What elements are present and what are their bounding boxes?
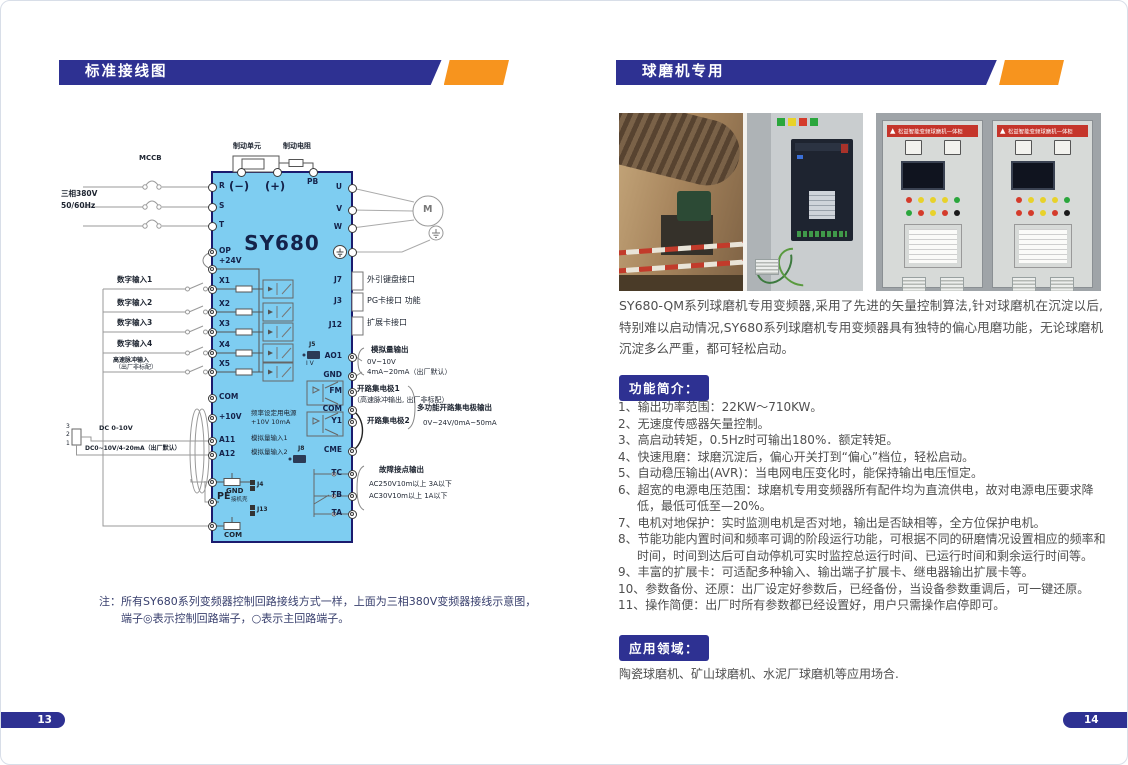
features-badge: 功能简介： — [619, 375, 709, 401]
oc-group-arc — [352, 410, 363, 451]
light-yellow — [1028, 197, 1034, 203]
terminal-label-TC: TC — [331, 469, 342, 478]
meter-icon — [944, 140, 961, 155]
supply-frequency-label: 50/60Hz — [61, 202, 95, 211]
page-number-left: 13 — [1, 712, 65, 728]
brake-unit-label: 制动单元 — [233, 142, 261, 150]
terminal-S — [208, 203, 217, 212]
dc-range-label-2: DC0~10V/4-20mA（出厂默认） — [85, 446, 181, 453]
open-collector2-label: 开路集电极2 — [367, 417, 410, 426]
brake-resistor-label: 制动电阻 — [283, 142, 311, 150]
terminal-PB — [309, 168, 318, 177]
multi-oc-output-range: 0V~24V/0mA~50mA — [423, 419, 497, 427]
meter-icon — [1054, 140, 1071, 155]
terminal-label-W: W — [334, 223, 342, 232]
light-green — [906, 210, 912, 216]
application-badge: 应用领域： — [619, 635, 709, 661]
feature-item: 4、快速甩磨：球磨沉淀后，偏心开关打到“偏心”档位，轻松启动。 — [618, 449, 1115, 466]
square-yellow — [788, 118, 796, 126]
terminal-label-J3: J3 — [334, 297, 342, 306]
photo-control-cabinets: 松益智能变频球磨机一体柜 — [876, 113, 1101, 291]
right-header-bar: 球磨机专用 — [616, 60, 1064, 85]
wiring-diagram: (−)(+)PB RSTOP+24VX1X2X3X4X5COM+10VA11A1… — [61, 129, 541, 569]
feature-item: 9、丰富的扩展卡：可适配多种输入、输出端子扩展卡、继电器输出扩展卡等。 — [618, 564, 1115, 581]
feature-item: 10、参数备份、还原：出厂设定好参数后，已经备份，当设备参数重调后，可一键还原。 — [618, 581, 1115, 598]
terminal-label-J7: J7 — [334, 276, 342, 285]
left-header-bar: 标准接线图 — [59, 60, 509, 85]
digital-input-label: 数字输入2 — [117, 299, 152, 308]
terminal-X4 — [208, 349, 217, 358]
indicator-lights-row2 — [993, 210, 1092, 216]
terminal-R — [208, 183, 217, 192]
features-list: 1、输出功率范围：22KW～710KW。2、无速度传感器矢量控制。3、高启动转矩… — [618, 399, 1115, 614]
light-black — [1064, 210, 1070, 216]
light-yellow — [942, 197, 948, 203]
note-line1: 所有SY680系列变频器控制回路接线方式一样，上面为三相380V变频器接线示意图… — [121, 595, 536, 608]
terminal-X3 — [208, 328, 217, 337]
cabinet-vent — [755, 259, 779, 275]
terminal-label-AO1: AO1 — [325, 352, 342, 361]
terminal-label-X4: X4 — [219, 341, 230, 350]
analog-output-title: 模拟量输出 — [371, 346, 409, 355]
terminal-label-X2: X2 — [219, 300, 230, 309]
indicator-lights-row1 — [883, 197, 982, 203]
analog-input-wiring — [72, 409, 212, 502]
terminal-label-PB: PB — [307, 178, 318, 187]
indicator-squares — [777, 118, 818, 126]
terminal-unlabeled — [208, 498, 217, 507]
cabinet-interior — [747, 113, 863, 291]
terminal-label-U: U — [336, 183, 342, 192]
j4-label: J4 — [257, 482, 263, 489]
terminal-label-COM: COM — [323, 405, 342, 414]
vent-grille — [1012, 277, 1036, 291]
terminal-label-T: T — [219, 221, 224, 230]
terminal-label-TA: TA — [332, 509, 342, 518]
analog-output-range2: 4mA~20mA（出厂默认） — [367, 368, 451, 376]
terminal-U — [348, 184, 357, 193]
terminal-TC — [348, 470, 357, 479]
indicator-lights-row1 — [993, 197, 1092, 203]
light-yellow — [930, 197, 936, 203]
square-green2 — [810, 118, 818, 126]
spec-plate — [1014, 224, 1072, 268]
inverter-terminals — [797, 231, 847, 237]
meter-icon — [905, 140, 922, 155]
digital-input-label: 数字输入1 — [117, 276, 152, 285]
inverter-nameplate — [809, 191, 835, 219]
terminal-label-A12: A12 — [219, 450, 235, 459]
ball-mill-scene — [619, 113, 743, 291]
light-green — [1064, 197, 1070, 203]
terminal-label-(−): (−) — [229, 180, 249, 193]
warning-triangle-icon — [1000, 128, 1005, 133]
left-header-accent — [444, 60, 509, 85]
analog-output-range1: 0V~10V — [367, 358, 396, 366]
cabinet-banner: 松益智能变频球磨机一体柜 — [887, 125, 978, 137]
terminal-label-X3: X3 — [219, 320, 230, 329]
terminal-Y1 — [348, 418, 357, 427]
control-screen — [1011, 161, 1055, 190]
terminal-TA — [348, 510, 357, 519]
terminal-label-(+): (+) — [265, 180, 285, 193]
cabinet-vents — [883, 277, 982, 291]
terminal-label-COM: COM — [219, 393, 238, 402]
terminal-label-A11: A11 — [219, 436, 235, 445]
inverter-red-tag — [841, 144, 848, 153]
motor-label: M — [423, 205, 432, 216]
terminal-+10V — [208, 414, 217, 423]
freq-power-label-2: +10V 10mA — [251, 419, 290, 426]
fault-output-spec2: AC30V10m以上 1A以下 — [369, 492, 447, 500]
right-header-accent — [999, 60, 1064, 85]
banner-text: 松益智能变频球磨机一体柜 — [1008, 127, 1073, 135]
light-red — [1028, 210, 1034, 216]
terminal-label-V: V — [336, 205, 342, 214]
terminal-T — [208, 222, 217, 231]
diagram-linework — [61, 129, 541, 569]
terminal-X5 — [208, 368, 217, 377]
light-yellow — [930, 210, 936, 216]
cabinet-banner: 松益智能变频球磨机一体柜 — [997, 125, 1088, 137]
terminal-X1 — [208, 285, 217, 294]
mill-motor — [677, 191, 711, 221]
feature-item: 3、高启动转矩，0.5Hz时可输出180%．额定转矩。 — [618, 432, 1115, 449]
cabinet-right: 松益智能变频球磨机一体柜 — [992, 120, 1093, 288]
application-text: 陶瓷球磨机、矿山球磨机、水泥厂球磨机等应用场合. — [619, 665, 1103, 682]
light-yellow — [1052, 197, 1058, 203]
digital-input-label: 数字输入3 — [117, 319, 152, 328]
cabinet-vents — [993, 277, 1092, 291]
terminal-label-S: S — [219, 202, 224, 211]
inverter-unit — [791, 139, 853, 241]
terminal-A11 — [208, 437, 217, 446]
terminal-X2 — [208, 308, 217, 317]
terminal-unlabeled — [208, 522, 217, 531]
terminal-label-R: R — [219, 182, 225, 191]
breaker-poles — [143, 185, 161, 228]
fault-output-spec1: AC250V10m以上 3A以下 — [369, 480, 452, 488]
terminal-COM — [208, 394, 217, 403]
vent-grille — [902, 277, 926, 291]
terminal-label-X5: X5 — [219, 360, 230, 369]
feature-item: 8、节能功能内置时间和频率可调的阶段运行功能，可根据不同的研磨情况设置相应的频率… — [618, 531, 1115, 564]
feature-item: 6、超宽的电源电压范围：球磨机专用变频器所有配件均为直流供电，故对电源电压要求降… — [618, 482, 1115, 515]
light-red — [942, 210, 948, 216]
right-header-navy: 球磨机专用 — [616, 60, 1064, 85]
expansion-connectors — [352, 272, 363, 335]
terminal-V — [348, 206, 357, 215]
meter-icon — [1015, 140, 1032, 155]
freq-power-label-1: 频率设定用电源 — [251, 410, 297, 417]
keypad-port-label: 外引键盘接口 — [367, 275, 415, 284]
com-bottom-label: COM — [224, 531, 242, 539]
terminal-GND — [348, 372, 357, 381]
banner-text: 松益智能变频球磨机一体柜 — [898, 127, 963, 135]
wiring-note: 注：所有SY680系列变频器控制回路接线方式一样，上面为三相380V变频器接线示… — [99, 593, 536, 627]
vent-grille — [940, 277, 964, 291]
dc-range-label-1: DC 0-10V — [99, 425, 133, 432]
light-green — [954, 197, 960, 203]
feature-item: 2、无速度传感器矢量控制。 — [618, 416, 1115, 433]
pg-card-label: PG卡接口 功能 — [367, 296, 421, 305]
indicator-lights-row2 — [883, 210, 982, 216]
analog-input1-label: 模拟量输入1 — [251, 435, 288, 442]
open-collector1-label: 开路集电极1 — [357, 385, 400, 394]
terminal-label-TB: TB — [331, 491, 342, 500]
inverter-blue-tag — [797, 155, 803, 159]
feature-item: 1、输出功率范围：22KW～710KW。 — [618, 399, 1115, 416]
panel-meters — [883, 140, 982, 155]
terminal-TB — [348, 492, 357, 501]
terminal-label-GND: GND — [323, 371, 342, 380]
light-red — [906, 197, 912, 203]
j13-label: J13 — [257, 507, 268, 514]
terminal-label-Y1: Y1 — [331, 417, 342, 426]
vent-grille — [1050, 277, 1074, 291]
pot-pin-1: 1 — [66, 441, 70, 448]
light-yellow — [918, 197, 924, 203]
fault-output-title: 故障接点输出 — [379, 466, 424, 475]
pulse-input-note: （出厂非标配） — [115, 365, 157, 372]
mccb-label: MCCB — [139, 154, 162, 162]
terminal-label-X1: X1 — [219, 277, 230, 286]
j8-label: J8 — [298, 446, 304, 453]
expansion-card-label: 扩展卡接口 — [367, 318, 407, 327]
page-number-right: 14 — [1063, 712, 1127, 728]
catalog-spread: 标准接线图 — [0, 0, 1128, 765]
terminal-AO1 — [348, 353, 357, 362]
spec-plate — [904, 224, 962, 268]
light-yellow — [1040, 197, 1046, 203]
terminal-label-J12: J12 — [329, 321, 342, 330]
mill-cylinder — [619, 113, 743, 192]
cabinet-left: 松益智能变频球磨机一体柜 — [882, 120, 983, 288]
control-screen — [901, 161, 945, 190]
terminal-CME — [348, 447, 357, 456]
terminal-label-+24V: +24V — [219, 257, 242, 266]
j5-iv-label: I V — [306, 361, 314, 368]
warning-triangle-icon — [890, 128, 895, 133]
intro-paragraph: SY680-QM系列球磨机专用变频器,采用了先进的矢量控制算法,针对球磨机在沉淀… — [619, 295, 1103, 360]
pe-suffix-label: 接机壳 — [231, 497, 248, 503]
j5-label: J5 — [309, 342, 315, 349]
safety-railing-bottom — [619, 259, 743, 273]
note-prefix: 注： — [99, 595, 121, 608]
device-model-label: SY680 — [212, 232, 352, 255]
pot-pin-3: 3 — [66, 424, 70, 431]
supply-voltage-label: 三相380V — [61, 190, 97, 199]
switch-poles — [186, 287, 208, 374]
feature-item: 5、自动稳压输出(AVR)：当电网电压变化时，能保持输出电压恒定。 — [618, 465, 1115, 482]
feature-item: 11、操作简便：出厂时所有参数都已经设置好，用户只需操作启停即可。 — [618, 597, 1115, 614]
terminal-label-FM: FM — [329, 387, 342, 396]
light-red — [1016, 210, 1022, 216]
multi-oc-output-label: 多功能开路集电极输出 — [417, 404, 492, 413]
light-red — [918, 210, 924, 216]
terminal-A12 — [208, 451, 217, 460]
left-page-title: 标准接线图 — [59, 60, 168, 85]
light-yellow — [1040, 210, 1046, 216]
light-red — [1052, 210, 1058, 216]
terminal-unlabeled — [208, 478, 217, 487]
pe-label: PE — [217, 492, 230, 503]
terminal-(−) — [237, 168, 246, 177]
terminal-COM — [348, 406, 357, 415]
analog-input2-label: 模拟量输入2 — [251, 449, 288, 456]
terminal-label-+10V: +10V — [219, 413, 242, 422]
note-line2: 端子◎表示控制回路端子，○表示主回路端子。 — [121, 610, 536, 627]
feature-item: 7、电机对地保护：实时监测电机是否对地，输出是否缺相等，全方位保护电机。 — [618, 515, 1115, 532]
terminal-+24V — [208, 265, 217, 274]
right-page-title: 球磨机专用 — [616, 60, 725, 85]
light-black — [954, 210, 960, 216]
digital-input-label: 数字输入4 — [117, 340, 152, 349]
square-red — [799, 118, 807, 126]
panel-meters — [993, 140, 1092, 155]
square-green — [777, 118, 785, 126]
mill-floor — [619, 275, 743, 291]
photo-ball-mill-site — [619, 113, 863, 291]
left-header-navy: 标准接线图 — [59, 60, 509, 85]
light-red — [1016, 197, 1022, 203]
terminal-(+) — [273, 168, 282, 177]
terminal-label-CME: CME — [324, 446, 342, 455]
motor-circuit — [352, 188, 443, 252]
pot-pin-2: 2 — [66, 432, 70, 439]
